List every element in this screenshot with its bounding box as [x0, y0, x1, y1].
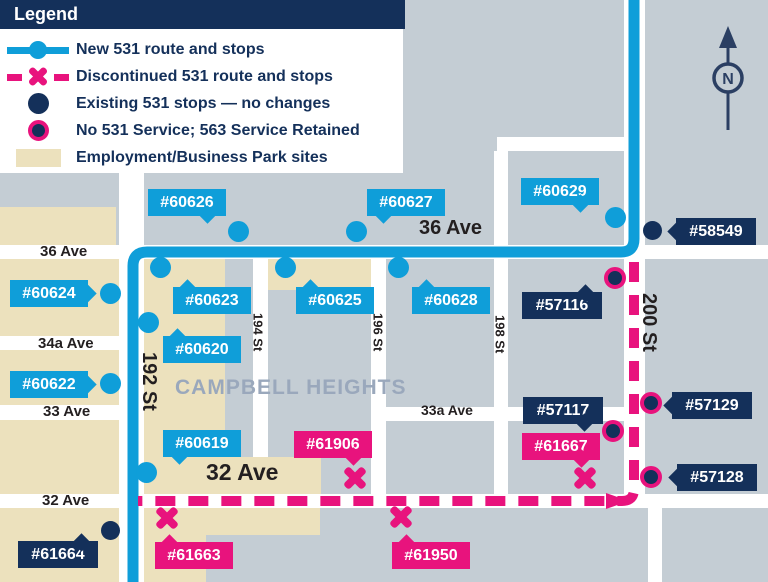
stop-tag-60622: #60622	[10, 371, 88, 398]
stop-marker-57129	[640, 392, 662, 414]
stop-tag-60627: #60627	[367, 189, 445, 216]
stop-marker-60619	[136, 462, 157, 483]
stop-tag-pointer	[78, 284, 96, 302]
stop-tag-61667: #61667	[522, 433, 600, 460]
north-label: N	[722, 71, 734, 88]
existing-stop-icon	[0, 90, 76, 117]
stop-tag-57128: #57128	[677, 464, 757, 491]
stop-marker-60629	[605, 207, 626, 228]
legend-item: Existing 531 stops — no changes	[0, 90, 403, 117]
stop-tag-pointer	[168, 328, 186, 346]
stop-marker-57128	[640, 466, 662, 488]
legend-item: Discontinued 531 route and stops	[0, 63, 403, 90]
stop-marker-61664	[101, 521, 120, 540]
legend-item-label: New 531 route and stops	[76, 41, 265, 59]
stop-tag-pointer	[668, 468, 686, 486]
stop-tag-60623: #60623	[173, 287, 251, 314]
stop-tag-58549: #58549	[676, 218, 756, 245]
legend-title: Legend	[0, 0, 405, 29]
stop-tag-pointer	[301, 279, 319, 297]
stop-tag-57129: #57129	[672, 392, 752, 419]
stop-tag-pointer	[397, 534, 415, 552]
stop-tag-pointer	[374, 205, 392, 223]
stop-tag-60619: #60619	[163, 430, 241, 457]
transit-map: 36 Ave36 Ave34a Ave33 Ave33a Ave32 Ave32…	[0, 0, 768, 582]
stop-tag-pointer	[417, 279, 435, 297]
stop-tag-pointer	[170, 446, 188, 464]
stop-tag-61950: #61950	[392, 542, 470, 569]
stop-marker-60623	[150, 257, 171, 278]
stop-tag-pointer	[72, 533, 90, 551]
stop-tag-61663: #61663	[155, 542, 233, 569]
stop-marker-61663	[154, 505, 180, 531]
stop-marker-60624	[100, 283, 121, 304]
stop-marker-57116	[604, 267, 626, 289]
stop-tag-pointer	[198, 205, 216, 223]
legend-rows: New 531 route and stopsDiscontinued 531 …	[0, 29, 403, 171]
legend-item: No 531 Service; 563 Service Retained	[0, 117, 403, 144]
stop-marker-60627	[346, 221, 367, 242]
legend-item-label: Discontinued 531 route and stops	[76, 68, 333, 86]
legend-item-label: Existing 531 stops — no changes	[76, 95, 330, 113]
stop-tag-pointer	[78, 375, 96, 393]
no-service-stop-icon	[0, 117, 76, 144]
legend-item-label: No 531 Service; 563 Service Retained	[76, 122, 360, 140]
north-arrow: N	[700, 16, 756, 138]
stop-marker-60625	[275, 257, 296, 278]
stop-tag-60628: #60628	[412, 287, 490, 314]
stop-tag-pointer	[575, 413, 593, 431]
stop-tag-pointer	[576, 284, 594, 302]
stop-tag-57117: #57117	[523, 397, 603, 424]
stop-marker-61667	[572, 465, 598, 491]
stop-tag-pointer	[344, 447, 362, 465]
stop-marker-57117	[602, 420, 624, 442]
business-park-icon	[0, 144, 76, 171]
stop-marker-61950	[388, 504, 414, 530]
stop-tag-pointer	[667, 222, 685, 240]
stop-marker-61906	[342, 465, 368, 491]
legend: Legend New 531 route and stopsDiscontinu…	[0, 0, 403, 173]
stop-tag-60624: #60624	[10, 280, 88, 307]
stop-tag-60625: #60625	[296, 287, 374, 314]
stop-marker-60620	[138, 312, 159, 333]
stop-marker-60626	[228, 221, 249, 242]
legend-item: New 531 route and stops	[0, 36, 403, 63]
new-route-icon	[0, 36, 76, 63]
stop-tag-61906: #61906	[294, 431, 372, 458]
stop-marker-60628	[388, 257, 409, 278]
stop-tag-pointer	[178, 279, 196, 297]
stop-tag-60629: #60629	[521, 178, 599, 205]
legend-item-label: Employment/Business Park sites	[76, 149, 328, 167]
stop-tag-pointer	[571, 194, 589, 212]
stop-tag-57116: #57116	[522, 292, 602, 319]
stop-tag-61664: #61664	[18, 541, 98, 568]
stop-tag-60620: #60620	[163, 336, 241, 363]
legend-item: Employment/Business Park sites	[0, 144, 403, 171]
stop-tag-60626: #60626	[148, 189, 226, 216]
stop-tag-pointer	[160, 534, 178, 552]
stop-marker-58549	[643, 221, 662, 240]
discontinued-route-icon	[0, 63, 76, 90]
stop-marker-60622	[100, 373, 121, 394]
stop-tag-pointer	[663, 396, 681, 414]
